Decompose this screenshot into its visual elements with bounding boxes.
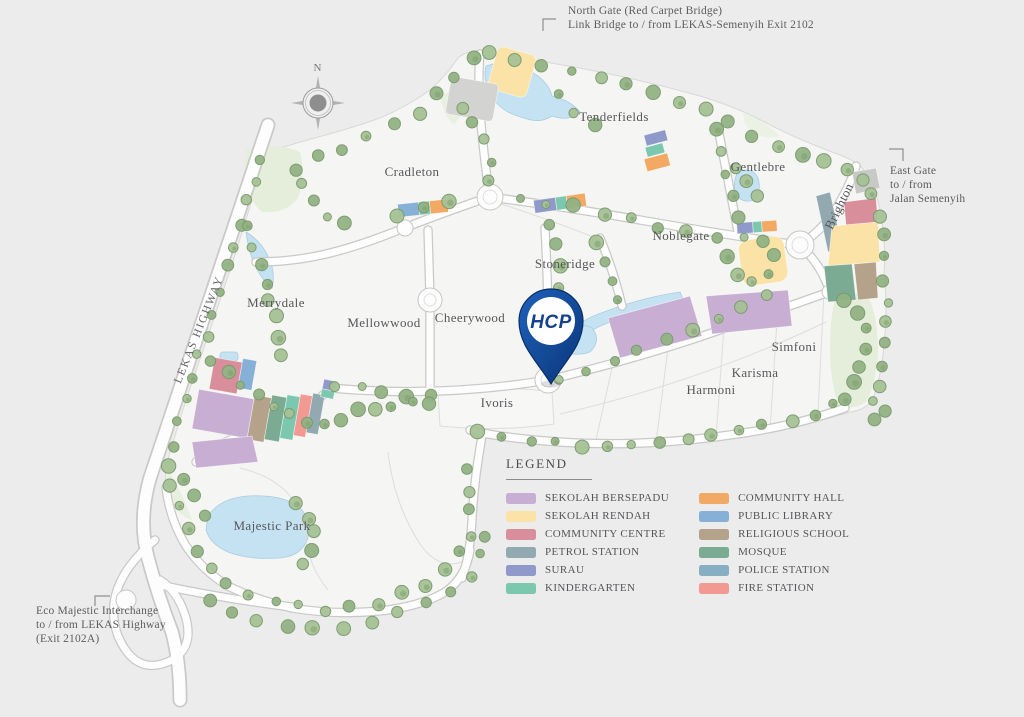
legend-column-right: COMMUNITY HALL PUBLIC LIBRARY RELIGIOUS … <box>699 492 849 600</box>
legend-item-fire-station: FIRE STATION <box>699 582 849 594</box>
legend-swatch <box>699 583 729 594</box>
interchange-note-line2: to / from LEKAS Highway <box>36 619 166 631</box>
area-label-ivoris: Ivoris <box>481 395 514 410</box>
legend-swatch <box>506 493 536 504</box>
area-label-simfoni: Simfoni <box>772 339 817 354</box>
area-label-merrydale: Merrydale <box>247 295 305 310</box>
east-gate-note-line1: East Gate <box>890 165 936 177</box>
legend-swatch <box>699 565 729 576</box>
area-label-harmoni: Harmoni <box>686 382 735 397</box>
area-label-karisma: Karisma <box>732 365 779 380</box>
legend-item-police-station: POLICE STATION <box>699 564 849 576</box>
legend-swatch <box>699 493 729 504</box>
area-label-tenderfields: Tenderfields <box>579 109 649 124</box>
legend-title: LEGEND <box>506 456 849 472</box>
legend-item-surau: SURAU <box>506 564 669 576</box>
legend-item-sekolah-rendah: SEKOLAH RENDAH <box>506 510 669 522</box>
legend-item-public-library: PUBLIC LIBRARY <box>699 510 849 522</box>
area-label-cheerywood: Cheerywood <box>435 310 506 325</box>
legend-swatch <box>699 511 729 522</box>
legend-item-petrol-station: PETROL STATION <box>506 546 669 558</box>
area-label-cradleton: Cradleton <box>385 164 440 179</box>
legend-item-religious-school: RELIGIOUS SCHOOL <box>699 528 849 540</box>
area-label-mellowwood: Mellowwood <box>347 315 420 330</box>
map-canvas: N Tenderfields Cradleton Gentlebre Noble… <box>0 0 1024 717</box>
east-gate-note-line3: Jalan Semenyih <box>890 193 965 205</box>
legend-item-mosque: MOSQUE <box>699 546 849 558</box>
compass-rose: N <box>291 62 345 130</box>
legend-swatch <box>506 583 536 594</box>
area-label-stoneridge: Stoneridge <box>535 256 595 271</box>
legend-swatch <box>699 547 729 558</box>
majestic-purple-school <box>192 436 258 468</box>
legend-swatch <box>699 529 729 540</box>
north-gate-bracket <box>543 19 556 31</box>
legend: LEGEND SEKOLAH BERSEPADU SEKOLAH RENDAH … <box>506 456 849 600</box>
area-label-gentlebre: Gentlebre <box>731 159 786 174</box>
legend-swatch <box>506 547 536 558</box>
east-gate-note-line2: to / from <box>890 179 932 191</box>
legend-item-kindergarten: KINDERGARTEN <box>506 582 669 594</box>
legend-swatch <box>506 529 536 540</box>
legend-column-left: SEKOLAH BERSEPADU SEKOLAH RENDAH COMMUNI… <box>506 492 669 600</box>
legend-item-sekolah-bersepadu: SEKOLAH BERSEPADU <box>506 492 669 504</box>
area-label-noblegate: Noblegate <box>652 228 709 243</box>
interchange-note-line3: (Exit 2102A) <box>36 633 99 645</box>
legend-divider <box>506 479 592 480</box>
north-gate-note-line1: North Gate (Red Carpet Bridge) <box>568 5 722 17</box>
legend-item-community-hall: COMMUNITY HALL <box>699 492 849 504</box>
area-label-majestic-park: Majestic Park <box>233 518 310 533</box>
noblegate-purple-school-2 <box>706 290 792 334</box>
compass-n-label: N <box>314 62 323 74</box>
east-gate-bracket <box>889 149 903 161</box>
legend-swatch <box>506 511 536 522</box>
legend-swatch <box>506 565 536 576</box>
legend-item-community-centre: COMMUNITY CENTRE <box>506 528 669 540</box>
interchange-note-line1: Eco Majestic Interchange <box>36 605 158 617</box>
pin-label: HCP <box>530 312 572 333</box>
north-gate-note-line2: Link Bridge to / from LEKAS-Semenyih Exi… <box>568 19 814 31</box>
township-map: N Tenderfields Cradleton Gentlebre Noble… <box>0 0 1024 717</box>
